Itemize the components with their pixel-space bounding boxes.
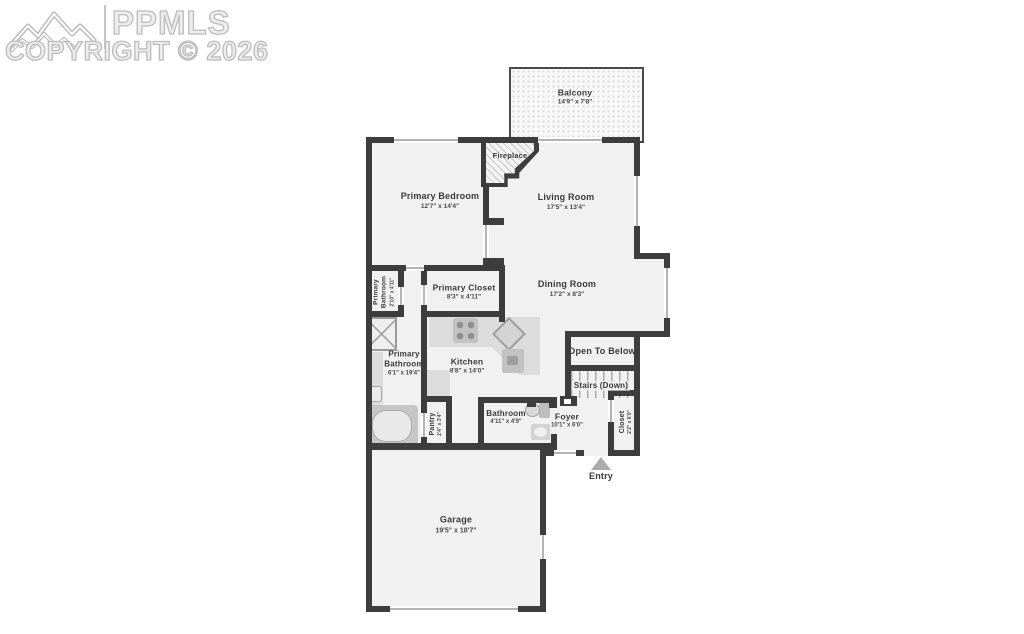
garage-window [540,535,546,559]
primary-bathroom-dims: 6'1" x 19'4" [378,370,430,378]
room-label-pantry: Pantry 2'4" x 3'4" [428,412,444,436]
room-label-living-room: Living Room 17'5" x 13'4" [538,192,595,212]
stairs-name: Stairs (Down) [572,381,630,391]
garage-name: Garage [435,515,476,527]
dishwasher-icon [502,349,524,373]
pantry-dims: 2'4" x 3'4" [437,412,444,436]
primary-bathroom-small-dims: 2'10" x 4'11" [389,270,396,314]
room-label-primary-bathroom-small: Primary Bathroom 2'10" x 4'11" [372,270,395,314]
room-label-garage: Garage 19'5" x 18'7" [435,515,476,536]
room-label-dining-room: Dining Room 17'2" x 8'3" [538,279,596,299]
primary-bathroom-small-name: Primary Bathroom [372,270,389,314]
kitchen-dims: 8'8" x 14'0" [450,367,485,375]
dining-room-dims: 17'2" x 8'3" [538,291,596,299]
watermark-copyright: COPYRIGHT © 2026 [5,36,268,67]
primary-bathroom-name: Primary Bathroom [378,350,430,371]
living-room-name: Living Room [538,192,595,204]
closet-name: Closet [618,410,627,434]
watermark: PPMLS COPYRIGHT © 2026 [0,0,280,70]
room-label-primary-closet: Primary Closet 8'3" x 4'11" [433,282,496,301]
floorplan-page: { "watermark": { "brand": "PPMLS", "copy… [0,0,1024,634]
garage-dims: 19'5" x 18'7" [435,526,476,535]
dining-room-window [664,268,670,318]
room-label-primary-bathroom: Primary Bathroom 6'1" x 19'4" [378,350,430,379]
room-label-kitchen: Kitchen 8'8" x 14'0" [450,356,485,375]
room-label-stairs: Stairs (Down) [572,381,630,391]
primary-closet-door [421,285,427,305]
balcony-dims: 14'9" x 7'8" [558,98,593,106]
wc-door [398,287,404,305]
entry-arrow-icon [591,457,611,470]
pantry-name: Pantry [428,412,437,436]
bedroom-hall-door [406,265,424,271]
room-label-fireplace: Fireplace [493,151,528,161]
primary-closet-dims: 8'3" x 4'11" [433,293,496,301]
foyer-closet-door [608,400,614,422]
entry-name: Entry [589,471,613,483]
room-label-bathroom: Bathroom 4'11" x 4'9" [486,409,525,427]
primary-closet-name: Primary Closet [433,282,496,293]
bedroom-window [394,137,458,143]
primary-bedroom-name: Primary Bedroom [401,191,480,203]
pantry-door [421,413,427,437]
bedroom-door [483,225,489,258]
living-room-window [634,176,640,226]
bathroom-dims: 4'11" x 4'9" [486,419,525,427]
primary-bedroom-dims: 12'7" x 14'4" [401,203,480,211]
fireplace-name: Fireplace [493,151,528,161]
room-label-foyer: Foyer 10'1" x 6'0" [551,412,583,431]
bathroom-name: Bathroom [486,409,525,419]
foyer-name: Foyer [551,412,583,423]
stove-icon [453,318,478,343]
dining-room-name: Dining Room [538,279,596,291]
room-label-primary-bedroom: Primary Bedroom 12'7" x 14'4" [401,191,480,211]
closet-dims: 2'2" x 6'0" [627,410,634,434]
half-bath-sink-icon [531,424,550,440]
room-label-open-to-below: Open To Below [568,346,635,358]
garage-door [390,606,518,612]
bathtub-icon [366,405,418,447]
kitchen-name: Kitchen [450,356,485,367]
foyer-dims: 10'1" x 6'0" [551,423,583,431]
room-label-balcony: Balcony 14'9" x 7'8" [558,87,593,106]
living-room-dims: 17'5" x 13'4" [538,204,595,212]
balcony-door [538,137,602,143]
entry-label: Entry [589,471,613,483]
front-door-sill [554,450,576,456]
open-to-below-name: Open To Below [568,346,635,358]
balcony-name: Balcony [558,87,593,98]
room-label-closet: Closet 2'2" x 6'0" [618,410,634,434]
